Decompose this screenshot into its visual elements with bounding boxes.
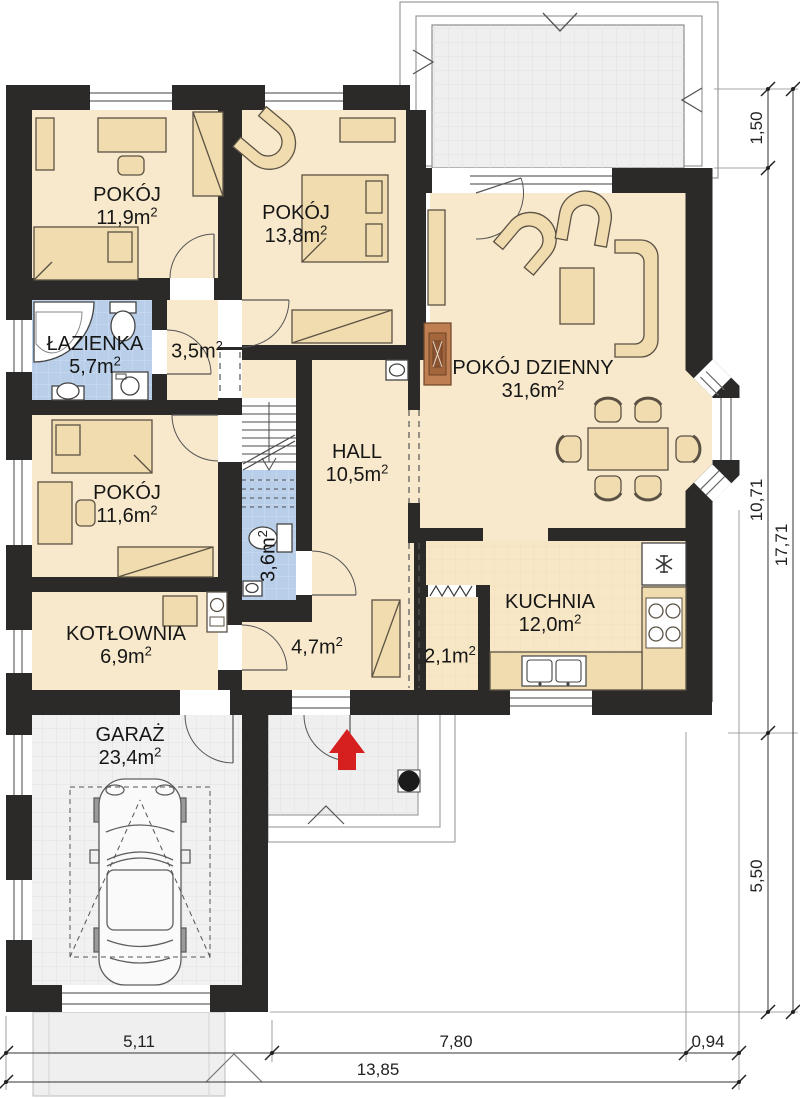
room-label-corridor-47: 4,7m2 — [291, 637, 343, 660]
car — [90, 779, 190, 985]
room-name: ŁAZIENKA — [47, 333, 144, 356]
entrance-porch-area — [268, 707, 455, 842]
dining-table — [588, 428, 668, 470]
room-area: 13,8m2 — [262, 225, 330, 248]
chair — [676, 436, 700, 462]
roof-slope-arrow-icon — [682, 88, 702, 112]
porch-column-icon — [399, 771, 420, 792]
room-label-kotlownia: KOTŁOWNIA 6,9m2 — [66, 623, 186, 669]
chair — [557, 436, 581, 462]
dim-bottom-1385: 13,85 — [357, 1060, 400, 1080]
room-area: 11,6m2 — [93, 505, 161, 528]
wardrobe — [36, 118, 54, 170]
boiler — [163, 596, 197, 626]
room-area: 31,6m2 — [452, 380, 613, 403]
window — [90, 85, 172, 110]
driveway-area — [33, 1012, 262, 1096]
room-area: 10,5m2 — [326, 464, 389, 487]
dim-bottom-780: 7,80 — [439, 1032, 472, 1052]
room-label-lazienka: ŁAZIENKA 5,7m2 — [47, 333, 144, 379]
chair — [595, 476, 621, 500]
room-name: HALL — [326, 441, 389, 464]
room-label-wc: 3,6m2 — [258, 530, 281, 582]
pillow — [56, 425, 80, 455]
washbasin — [57, 383, 79, 399]
room-area: 4,7m2 — [291, 637, 343, 660]
floor-plan: POKÓJ 11,9m2 POKÓJ 13,8m2 ŁAZIENKA 5,7m2… — [0, 0, 800, 1098]
dresser — [340, 118, 395, 142]
dim-right-1771: 17,71 — [772, 524, 792, 567]
room-label-hall: HALL 10,5m2 — [326, 441, 389, 487]
dim-right-550: 5,50 — [747, 859, 767, 892]
closet-grille — [428, 585, 476, 597]
room-label-corridor-35: 3,5m2 — [171, 341, 223, 364]
pillow — [366, 181, 382, 213]
room-label-pokoj-dzienny: POKÓJ DZIENNY 31,6m2 — [452, 357, 613, 403]
room-label-pokoj-1: POKÓJ 11,9m2 — [93, 184, 161, 230]
coffee-table — [560, 268, 594, 324]
garage-door — [62, 985, 210, 1012]
chair — [118, 156, 144, 175]
room-label-pokoj-3: POKÓJ 11,6m2 — [93, 482, 161, 528]
window — [6, 460, 32, 545]
room-name: KUCHNIA — [505, 591, 595, 614]
room-area: 3,5m2 — [171, 341, 223, 364]
room-label-closet-21: 2,1m2 — [424, 646, 476, 669]
window — [6, 880, 32, 940]
room-area: 3,6m2 — [258, 530, 281, 582]
desk — [38, 482, 72, 544]
room-area: 11,9m2 — [93, 207, 161, 230]
chair — [635, 398, 661, 422]
window — [265, 85, 343, 110]
shelf-unit — [428, 210, 445, 305]
room-area: 2,1m2 — [424, 646, 476, 669]
chair — [635, 476, 661, 500]
window — [510, 690, 592, 715]
floor-plan-svg — [0, 0, 800, 1098]
room-area: 12,0m2 — [505, 614, 595, 637]
window — [6, 320, 32, 372]
dim-bottom-094: 0,94 — [691, 1032, 724, 1052]
pillow — [108, 232, 132, 262]
room-area: 6,9m2 — [66, 646, 186, 669]
room-area: 5,7m2 — [47, 356, 144, 379]
room-name: POKÓJ DZIENNY — [452, 357, 613, 380]
room-name: KOTŁOWNIA — [66, 623, 186, 646]
room-area: 23,4m2 — [96, 747, 165, 770]
room-label-garaz: GARAŻ 23,4m2 — [96, 724, 165, 770]
terrace-area — [400, 2, 718, 178]
dim-right-1071: 10,71 — [747, 479, 767, 522]
window — [6, 735, 32, 795]
dim-right-150: 1,50 — [747, 111, 767, 144]
pillow — [366, 224, 382, 256]
room-label-pokoj-2: POKÓJ 13,8m2 — [262, 202, 330, 248]
desk — [98, 118, 166, 152]
room-label-kuchnia: KUCHNIA 12,0m2 — [505, 591, 595, 637]
dim-bottom-511: 5,11 — [123, 1032, 155, 1052]
fireplace — [424, 323, 451, 385]
window — [6, 630, 32, 673]
